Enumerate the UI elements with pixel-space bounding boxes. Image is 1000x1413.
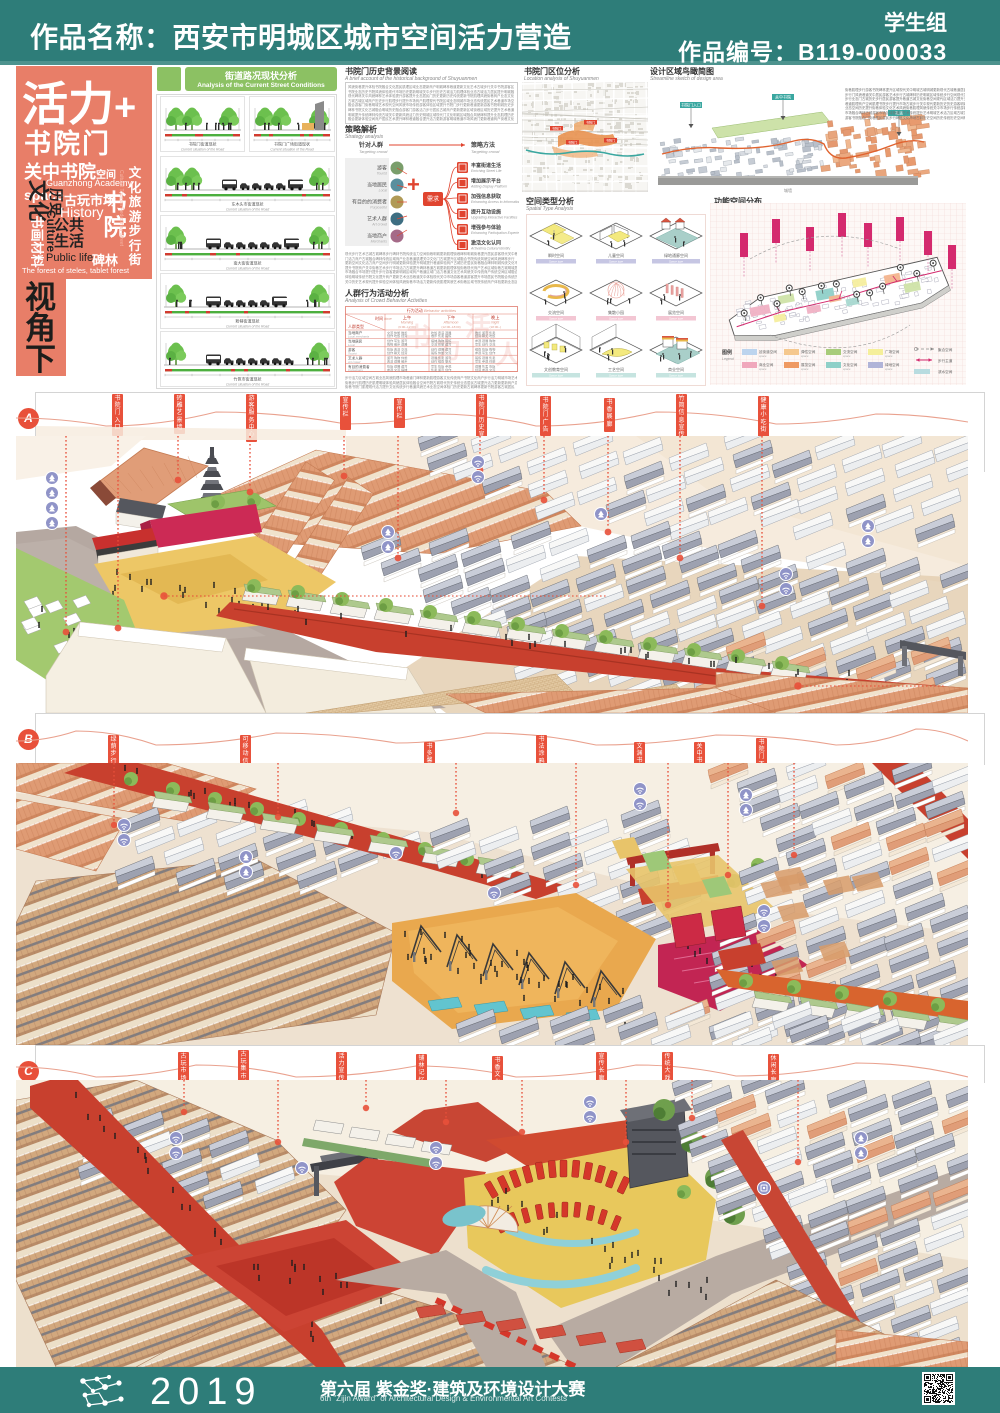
svg-text:Adding Display Platform: Adding Display Platform xyxy=(470,185,507,189)
svg-text:儿童空间: 儿童空间 xyxy=(608,252,624,258)
svg-text:Current situation of the Road: Current situation of the Road xyxy=(181,148,224,152)
svg-text:艺术人群: 艺术人群 xyxy=(367,216,387,223)
svg-text:(6:00–12:00): (6:00–12:00) xyxy=(398,325,416,329)
svg-text:space: space xyxy=(801,367,809,371)
svg-text:space: space xyxy=(885,354,893,358)
svg-text:城墙: 城墙 xyxy=(784,187,792,193)
svg-text:Space type: Space type xyxy=(669,317,683,321)
svg-text:space: space xyxy=(759,354,767,358)
svg-text:书院门入口: 书院门入口 xyxy=(681,102,701,108)
svg-text:购物 散步 观展: 购物 散步 观展 xyxy=(387,342,407,347)
svg-text:表演 观展 散步: 表演 观展 散步 xyxy=(387,358,407,363)
svg-text:Art crowd: Art crowd xyxy=(347,360,361,364)
svg-text:Space type: Space type xyxy=(609,374,623,378)
svg-text:Space type: Space type xyxy=(609,317,623,321)
svg-text:参观 写生 创作: 参观 写生 创作 xyxy=(475,350,495,355)
svg-text:需求: 需求 xyxy=(427,195,439,203)
svg-text:书院门: 书院门 xyxy=(568,140,577,145)
svg-text:行为活动 Behavior activities: 行为活动 Behavior activities xyxy=(407,307,456,313)
svg-text:售卖 遛弯 创作: 售卖 遛弯 创作 xyxy=(431,367,451,372)
svg-text:Art crowd: Art crowd xyxy=(371,223,388,227)
svg-text:当地商户: 当地商户 xyxy=(367,233,387,240)
svg-text:当地居民: 当地居民 xyxy=(367,182,387,189)
svg-text:Consumers: Consumers xyxy=(348,368,363,372)
svg-text:Space type: Space type xyxy=(549,317,563,321)
svg-text:激活文化认同: 激活文化认同 xyxy=(471,240,501,247)
svg-text:Current situation of the Road: Current situation of the Road xyxy=(270,148,313,152)
svg-text:南大街街道现状: 南大街街道现状 xyxy=(234,260,262,266)
svg-text:参观 交流 摆摊: 参观 交流 摆摊 xyxy=(387,367,407,372)
svg-text:Night: Night xyxy=(491,321,500,325)
svg-text:Current situation of the Road: Current situation of the Road xyxy=(226,267,269,271)
svg-text:Activating Cultural Identity: Activating Cultural Identity xyxy=(470,247,511,251)
svg-text:集散小园: 集散小园 xyxy=(608,309,624,315)
svg-text:space: space xyxy=(843,354,851,358)
svg-text:space: space xyxy=(801,354,809,358)
svg-text:写生 参观 休憩: 写生 参观 休憩 xyxy=(475,358,495,363)
svg-text:时间 time: 时间 time xyxy=(375,315,392,321)
svg-text:增强参与体验: 增强参与体验 xyxy=(471,224,501,231)
svg-text:工艺空间: 工艺空间 xyxy=(608,366,624,372)
svg-text:Current situation of the Road: Current situation of the Road xyxy=(226,208,269,212)
svg-text:Space type: Space type xyxy=(549,374,563,378)
svg-text:Space type: Space type xyxy=(669,260,683,264)
svg-text:加强信息获取: 加强信息获取 xyxy=(470,193,501,200)
svg-text:Merchants: Merchants xyxy=(371,240,388,244)
svg-text:+: + xyxy=(407,172,420,197)
svg-text:东木头市街道现状: 东木头市街道现状 xyxy=(232,201,264,207)
svg-text:瞬时空间: 瞬时空间 xyxy=(548,252,564,258)
svg-text:创作 吃饭 经营: 创作 吃饭 经营 xyxy=(387,333,407,338)
svg-text:绿地通廊空间: 绿地通廊空间 xyxy=(664,252,688,258)
svg-text:交流 休憩 遛弯: 交流 休憩 遛弯 xyxy=(431,342,451,347)
svg-text:步行主道: 步行主道 xyxy=(938,358,953,363)
svg-text:商业空间: 商业空间 xyxy=(668,366,684,372)
svg-text:Upgrading Interactive Faciliti: Upgrading Interactive Facilities xyxy=(471,216,518,220)
svg-text:Local: Local xyxy=(348,343,355,347)
svg-text:针对人群: 针对人群 xyxy=(359,141,383,149)
svg-text:Legend: Legend xyxy=(722,357,735,361)
svg-text:space: space xyxy=(843,367,851,371)
svg-text:Targeting crowd: Targeting crowd xyxy=(471,149,500,154)
svg-text:Enhancing Participation Experi: Enhancing Participation Experience xyxy=(471,231,519,235)
svg-text:创作 锻炼 聊天: 创作 锻炼 聊天 xyxy=(431,358,451,363)
svg-text:写生 创作 交流: 写生 创作 交流 xyxy=(475,342,495,347)
svg-text:游客: 游客 xyxy=(377,165,387,172)
svg-text:锻炼 休憩 交流: 锻炼 休憩 交流 xyxy=(431,350,451,355)
svg-text:增加展示平台: 增加展示平台 xyxy=(471,178,501,185)
svg-text:space: space xyxy=(759,367,767,371)
svg-text:书院门街道现状: 书院门街道现状 xyxy=(189,141,217,147)
svg-text:滨水空间: 滨水空间 xyxy=(938,369,953,374)
svg-text:Current situation of the Road: Current situation of the Road xyxy=(226,325,269,329)
svg-text:粉巷街道现状: 粉巷街道现状 xyxy=(236,318,260,324)
svg-text:Morning: Morning xyxy=(401,321,413,325)
svg-text:有目的的消费者: 有目的的消费者 xyxy=(352,199,387,206)
svg-text:Local merchants: Local merchants xyxy=(348,335,370,339)
svg-text:关中书院: 关中书院 xyxy=(775,94,791,100)
svg-text:书院门: 书院门 xyxy=(586,120,595,125)
svg-text:书院门: 书院门 xyxy=(552,126,561,131)
svg-text:Space type: Space type xyxy=(549,260,563,264)
svg-text:图例: 图例 xyxy=(722,349,732,356)
svg-text:Targeting crowd: Targeting crowd xyxy=(359,149,388,154)
svg-text:散步 售卖 锻炼: 散步 售卖 锻炼 xyxy=(431,333,451,338)
svg-text:Space type: Space type xyxy=(609,260,623,264)
svg-text:Afternoon: Afternoon xyxy=(443,321,459,325)
svg-text:Enhancing Access to Informatio: Enhancing Access to Information xyxy=(471,200,519,204)
svg-text:提升互动设施: 提升互动设施 xyxy=(471,209,501,216)
svg-text:Tourist: Tourist xyxy=(377,172,388,176)
svg-text:Purposeful: Purposeful xyxy=(370,206,387,210)
svg-text:Enriching Street Life: Enriching Street Life xyxy=(471,169,502,173)
svg-text:space: space xyxy=(885,367,893,371)
svg-text:人群类型: 人群类型 xyxy=(348,323,364,329)
svg-text:策略方法: 策略方法 xyxy=(470,141,495,149)
svg-text:书院门: 书院门 xyxy=(606,138,615,143)
svg-text:Tourist: Tourist xyxy=(348,351,357,355)
svg-text:经营 聊天 吃饭: 经营 聊天 吃饭 xyxy=(475,333,495,338)
svg-text:Local: Local xyxy=(379,189,388,193)
svg-text:(12:00–18:00): (12:00–18:00) xyxy=(441,325,460,329)
svg-text:经营 参观 交流: 经营 参观 交流 xyxy=(475,367,495,372)
svg-text:文创教育空间: 文创教育空间 xyxy=(544,366,568,372)
svg-text:创作 聊天 经营: 创作 聊天 经营 xyxy=(387,350,407,355)
svg-text:交流空间: 交流空间 xyxy=(548,309,564,315)
svg-text:Space type: Space type xyxy=(669,374,683,378)
svg-text:展览空间: 展览空间 xyxy=(668,309,684,315)
svg-text:丰富街道生活: 丰富街道生活 xyxy=(471,162,501,169)
svg-text:书院门广场街道现状: 书院门广场街道现状 xyxy=(274,141,310,147)
svg-text:(18:00–): (18:00–) xyxy=(489,325,501,329)
svg-text:Current situation of the Road: Current situation of the Road xyxy=(226,383,269,387)
svg-text:聚合空间: 聚合空间 xyxy=(938,347,953,352)
svg-text:竹笆市街道现状: 竹笆市街道现状 xyxy=(234,376,262,382)
